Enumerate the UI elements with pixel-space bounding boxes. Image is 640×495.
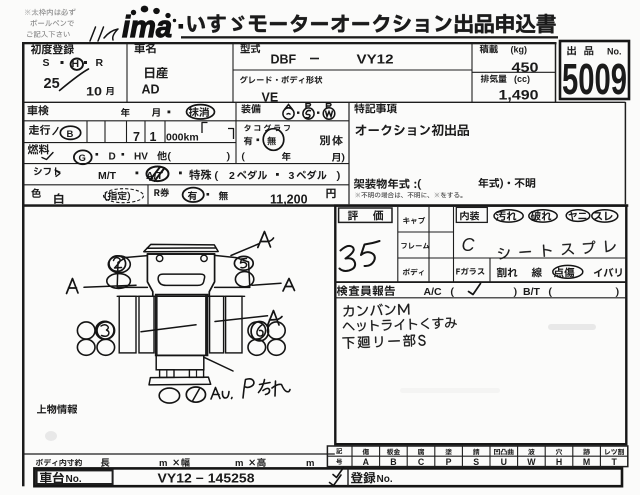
svg-text:000km: 000km	[166, 132, 199, 144]
svg-text:B: B	[390, 457, 396, 467]
svg-text:M: M	[583, 457, 590, 467]
svg-text:S: S	[473, 457, 479, 467]
svg-text:T: T	[612, 457, 618, 467]
svg-text:A/C: A/C	[424, 286, 443, 298]
svg-text:G: G	[79, 153, 86, 164]
svg-text:7: 7	[133, 130, 140, 144]
svg-text:No.: No.	[66, 474, 82, 485]
svg-text:(kg): (kg)	[511, 45, 528, 55]
svg-text:VY12: VY12	[357, 53, 394, 67]
svg-text:450: 450	[512, 59, 539, 75]
svg-text:ima: ima	[122, 9, 172, 44]
svg-text:HV: HV	[134, 152, 148, 163]
svg-text:AD: AD	[142, 83, 160, 97]
svg-text:C: C	[418, 457, 425, 467]
svg-text:B/T: B/T	[523, 286, 541, 298]
svg-text:(cc): (cc)	[514, 74, 530, 84]
svg-text:U: U	[501, 457, 507, 467]
svg-text:11,200: 11,200	[270, 193, 308, 207]
svg-text:VE: VE	[262, 91, 279, 105]
svg-text:5009: 5009	[562, 55, 627, 104]
svg-text:10: 10	[86, 85, 102, 99]
svg-text:25: 25	[44, 76, 60, 92]
svg-text:R: R	[96, 57, 104, 69]
svg-text:1,490: 1,490	[499, 88, 539, 103]
svg-text:H: H	[556, 457, 562, 467]
svg-text:No.: No.	[377, 474, 393, 485]
svg-text:A: A	[363, 457, 370, 467]
svg-text:M/T: M/T	[98, 170, 117, 182]
svg-text:W: W	[527, 457, 536, 467]
svg-text:C: C	[462, 235, 476, 255]
svg-text:P: P	[446, 457, 452, 467]
svg-text:1: 1	[150, 130, 157, 144]
svg-text:2: 2	[229, 170, 235, 182]
svg-text:VY12 − 145258: VY12 − 145258	[158, 472, 255, 486]
svg-text:B: B	[67, 129, 74, 140]
svg-text:D: D	[109, 152, 116, 163]
svg-text:DBF: DBF	[271, 53, 297, 67]
svg-text:3: 3	[289, 170, 295, 182]
svg-text:S: S	[43, 57, 50, 69]
